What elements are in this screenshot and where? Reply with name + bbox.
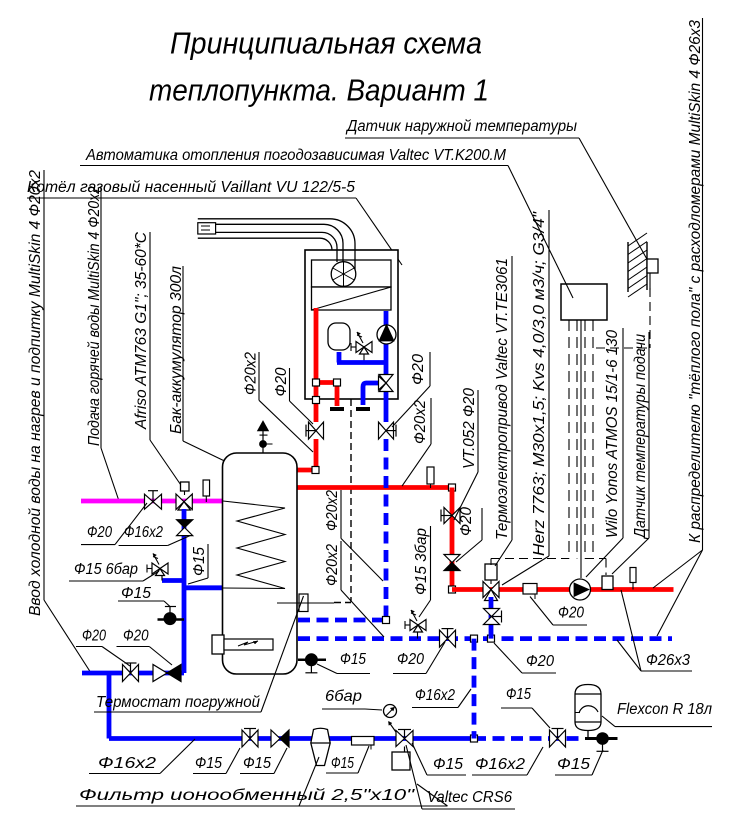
svg-text:Valtec CRS6: Valtec CRS6 [427, 789, 512, 806]
svg-text:Датчик наружной температуры: Датчик наружной температуры [345, 118, 577, 135]
svg-text:Ф15: Ф15 [506, 686, 531, 703]
svg-text:Ф15: Ф15 [331, 755, 354, 772]
svg-text:Фильтр ионообменный 2,5"х10": Фильтр ионообменный 2,5"х10" [79, 787, 416, 804]
svg-text:Ф16х2: Ф16х2 [124, 524, 163, 541]
svg-text:Ф20: Ф20 [526, 653, 554, 670]
svg-text:Ф20: Ф20 [273, 367, 290, 396]
svg-text:Ф20х2: Ф20х2 [243, 352, 260, 395]
svg-text:Ф20: Ф20 [410, 354, 427, 385]
svg-text:Термоэлектропривод Valtec VT.T: Термоэлектропривод Valtec VT.TE3061 [494, 258, 511, 540]
svg-text:теплопункта. Вариант 1: теплопункта. Вариант 1 [149, 73, 489, 108]
svg-text:Ф16х2: Ф16х2 [415, 687, 455, 704]
svg-text:Ф16х2: Ф16х2 [475, 756, 525, 773]
svg-text:Ф20: Ф20 [397, 651, 424, 668]
svg-text:Автоматика отопления погодозав: Автоматика отопления погодозависимая Val… [85, 147, 506, 164]
svg-text:Ф15 3бар: Ф15 3бар [413, 528, 430, 595]
svg-text:Ф20х2: Ф20х2 [324, 490, 341, 531]
svg-text:Ф15: Ф15 [243, 755, 271, 772]
svg-text:Ф15: Ф15 [340, 651, 366, 668]
svg-text:Котёл газовый насенный Vaillan: Котёл газовый насенный Vaillant VU 122/5… [27, 179, 355, 196]
svg-text:Ф20: Ф20 [558, 605, 584, 622]
svg-text:Afriso ATM763 G1"; 35-60*C: Afriso ATM763 G1"; 35-60*C [133, 231, 150, 430]
svg-text:Ввод холодной воды на нагрев и: Ввод холодной воды на нагрев и подпитку … [27, 170, 44, 616]
svg-text:Wilo Yonos ATMOS 15/1-6 130: Wilo Yonos ATMOS 15/1-6 130 [604, 330, 621, 538]
svg-text:Ф15: Ф15 [195, 755, 222, 772]
svg-text:Ф15 6бар: Ф15 6бар [74, 561, 138, 578]
svg-text:Ф15: Ф15 [121, 585, 151, 602]
svg-text:Термостат погружной: Термостат погружной [96, 694, 260, 711]
svg-text:Ф20х2: Ф20х2 [324, 544, 341, 586]
svg-text:Ф20х2: Ф20х2 [412, 400, 429, 444]
svg-text:Ф20: Ф20 [458, 507, 475, 536]
svg-text:Ф15: Ф15 [433, 756, 463, 773]
svg-text:Ф26х3: Ф26х3 [646, 652, 690, 669]
svg-text:Ф16х2: Ф16х2 [98, 755, 156, 772]
svg-text:К распределителю "тёплого пола: К распределителю "тёплого пола" с расход… [687, 20, 704, 543]
svg-text:Herz 7763; M30x1,5; Kvs 4,0/3,: Herz 7763; M30x1,5; Kvs 4,0/3,0 м3/ч; G3… [531, 210, 548, 556]
svg-text:VT.052 Ф20: VT.052 Ф20 [461, 388, 478, 469]
svg-text:Ф20: Ф20 [123, 628, 149, 645]
svg-text:6бар: 6бар [325, 688, 362, 705]
svg-text:Датчик температуры подачи: Датчик температуры подачи [632, 334, 649, 540]
svg-text:Ф15: Ф15 [557, 756, 590, 773]
svg-text:Ф20: Ф20 [87, 524, 112, 541]
svg-text:Ф20: Ф20 [82, 628, 106, 645]
svg-text:Принципиальная схема: Принципиальная схема [170, 26, 482, 61]
svg-text:Flexcon R 18л: Flexcon R 18л [617, 701, 712, 718]
svg-text:Ф15: Ф15 [191, 547, 208, 576]
